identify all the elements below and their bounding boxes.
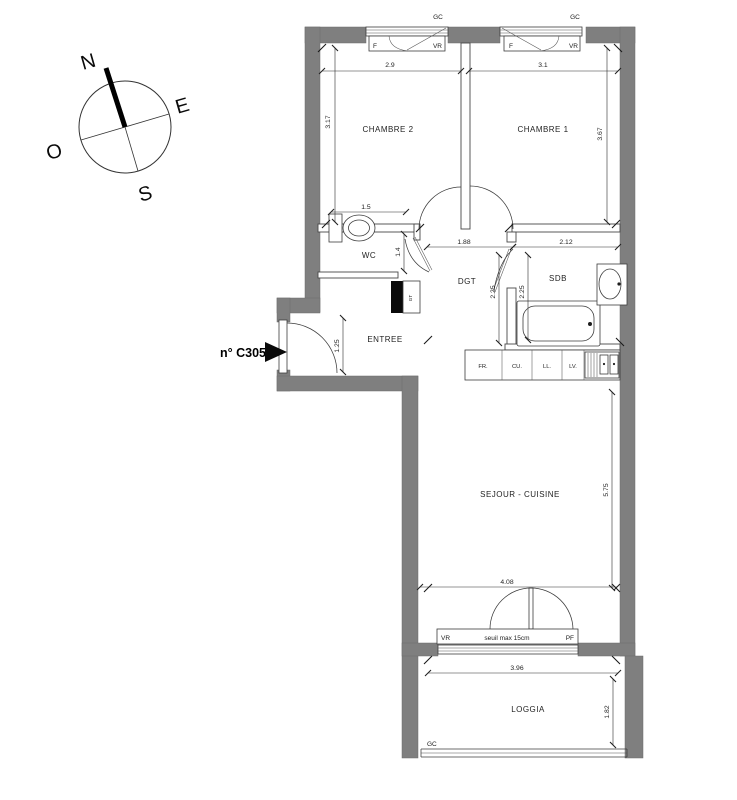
dim-sdb-width: 2.12 <box>559 239 572 246</box>
kitchen-counter: FR. CU. LL. LV. <box>465 350 620 380</box>
window2-f-label: F <box>373 43 377 50</box>
dim-chambre2-width: 2.9 <box>385 62 395 69</box>
chambre2-label: CHAMBRE 2 <box>363 125 414 134</box>
dim-sejour-width: 4.08 <box>500 579 513 586</box>
doors <box>279 186 573 629</box>
dim-dgt-width: 1.88 <box>457 239 470 246</box>
compass-north-label: N <box>78 50 98 75</box>
compass-south-label: S <box>136 182 155 207</box>
window2-vr-label: VR <box>433 43 442 50</box>
wc-label: WC <box>362 251 376 260</box>
dim-chambre1-width: 3.1 <box>538 62 548 69</box>
window1-vr-label: VR <box>569 43 578 50</box>
kitchen-sink <box>585 352 619 378</box>
technical-duct: GT <box>391 281 420 313</box>
compass-rose: N E O S <box>44 50 192 207</box>
entry-door <box>279 320 337 373</box>
sejour-window-seuil-label: seuil max 15cm <box>484 635 529 642</box>
sejour-window-pf-label: PF <box>566 635 574 642</box>
window1-f-label: F <box>509 43 513 50</box>
floor-plan-svg: N E O S F VR <box>0 0 737 800</box>
sejour-window-vr-label: VR <box>441 635 450 642</box>
window2-gc-label: GC <box>433 14 443 21</box>
dim-chambre1-height: 3.67 <box>597 127 604 140</box>
dim-loggia-height: 1.82 <box>604 705 611 718</box>
washer-label: LL. <box>543 364 551 370</box>
chambre1-label: CHAMBRE 1 <box>518 125 569 134</box>
wc-door <box>405 237 432 272</box>
dim-entree-height: 1.25 <box>334 339 341 352</box>
dishwasher-label: LV. <box>569 364 577 370</box>
cooker-label: CU. <box>512 364 522 370</box>
duct-label: GT <box>408 295 413 302</box>
wc-toilet <box>329 214 375 242</box>
dgt-label: DGT <box>458 277 476 286</box>
loggia-label: LOGGIA <box>511 705 545 714</box>
dim-dgt-height: 2.25 <box>490 285 497 298</box>
dim-sejour-height: 5.75 <box>603 483 610 496</box>
loggia-gc-label: GC <box>427 741 437 748</box>
window-chambre1: F VR GC <box>500 14 582 51</box>
compass-west-label: O <box>44 140 65 165</box>
floor-plan-page: N E O S F VR <box>0 0 737 800</box>
chambre1-door-arc <box>470 186 513 229</box>
compass-east-label: E <box>173 94 192 119</box>
loggia-french-doors <box>490 588 573 629</box>
window-chambre2: F VR GC <box>366 14 448 51</box>
window1-gc-label: GC <box>570 14 580 21</box>
entree-label: ENTREE <box>367 335 402 344</box>
sdb-label: SDB <box>549 274 567 283</box>
window-sejour: VR seuil max 15cm PF <box>437 629 578 654</box>
compass-needle <box>106 68 125 127</box>
dim-wc-height: 1.4 <box>395 247 402 257</box>
sejour-cuisine-label: SEJOUR - CUISINE <box>480 490 560 499</box>
unit-number: n° C305 <box>220 342 287 362</box>
loggia-railing <box>421 749 627 757</box>
washbasin <box>597 264 627 305</box>
dim-chambre2-height: 3.17 <box>325 115 332 128</box>
dim-loggia-width: 3.96 <box>510 665 523 672</box>
bathtub <box>517 301 600 346</box>
fridge-label: FR. <box>478 364 488 370</box>
dim-wc-width: 1.5 <box>361 204 371 211</box>
chambre2-door-arc <box>419 187 461 229</box>
unit-number-label: n° C305 <box>220 346 266 360</box>
dim-sdb-height: 2.25 <box>519 285 526 298</box>
